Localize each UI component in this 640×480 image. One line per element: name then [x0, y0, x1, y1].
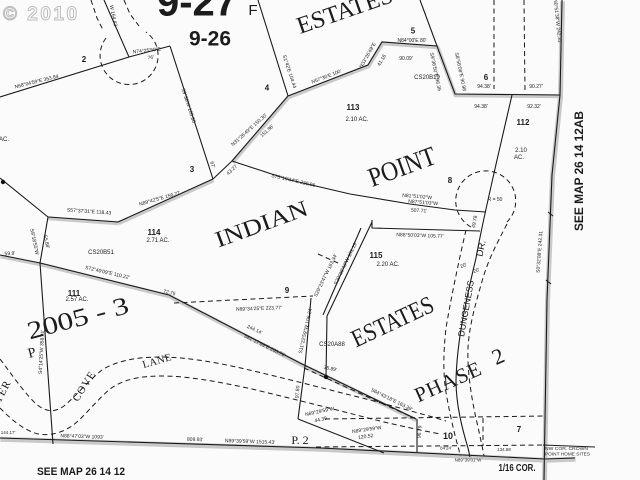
- svg-text:6: 6: [484, 73, 489, 82]
- svg-text:9: 9: [285, 286, 290, 295]
- svg-text:2.20 AC.: 2.20 AC.: [376, 262, 399, 268]
- svg-text:F: F: [248, 2, 257, 19]
- svg-text:4: 4: [265, 84, 270, 93]
- svg-text:7: 7: [517, 425, 522, 434]
- svg-text:2.10: 2.10: [515, 148, 527, 154]
- svg-text:114: 114: [148, 228, 161, 237]
- svg-text:809.93': 809.93': [187, 437, 203, 444]
- svg-text:59.8': 59.8': [4, 251, 15, 258]
- svg-text:144.17': 144.17': [1, 430, 16, 435]
- svg-text:2.57 AC.: 2.57 AC.: [65, 297, 88, 303]
- svg-text:AC.: AC.: [514, 155, 524, 161]
- svg-text:NW COR. CROWN: NW COR. CROWN: [545, 446, 588, 451]
- svg-text:P. 2: P. 2: [291, 433, 308, 447]
- svg-text:92.32': 92.32': [527, 104, 541, 110]
- svg-text:CS20B51: CS20B51: [88, 250, 114, 256]
- svg-text:8: 8: [448, 176, 453, 185]
- svg-text:AC.: AC.: [0, 137, 9, 143]
- svg-text:2.10 AC.: 2.10 AC.: [345, 117, 368, 123]
- svg-text:9-27: 9-27: [157, 0, 237, 25]
- svg-text:97.80: 97.80: [294, 385, 301, 398]
- svg-text:115: 115: [370, 251, 383, 260]
- svg-text:N84°00'E 80': N84°00'E 80': [398, 38, 427, 44]
- svg-text:90.27': 90.27': [529, 84, 543, 90]
- svg-text:SEE MAP 26 14 12: SEE MAP 26 14 12: [37, 466, 125, 478]
- svg-text:SEE MAP 26 14 12AB: SEE MAP 26 14 12AB: [572, 111, 586, 231]
- svg-text:R = 50: R = 50: [488, 197, 503, 203]
- svg-text:1/16 COR.: 1/16 COR.: [499, 463, 536, 474]
- svg-text:N89°39'01"W: N89°39'01"W: [455, 458, 483, 463]
- svg-text:112: 112: [517, 118, 530, 127]
- svg-text:10: 10: [443, 431, 453, 441]
- svg-text:3: 3: [190, 165, 195, 174]
- svg-text:94.38': 94.38': [474, 104, 488, 110]
- svg-text:76': 76': [147, 55, 154, 62]
- svg-text:2: 2: [82, 55, 87, 64]
- svg-text:94.38': 94.38': [477, 84, 491, 90]
- svg-text:113: 113: [347, 103, 360, 112]
- svg-text:© 2010: © 2010: [3, 4, 80, 25]
- svg-text:84'24': 84'24': [440, 446, 452, 451]
- svg-text:90.09': 90.09': [399, 56, 413, 62]
- svg-text:POINT HOME SITES: POINT HOME SITES: [545, 452, 590, 457]
- svg-text:9-26: 9-26: [189, 27, 231, 51]
- svg-text:CS20A88: CS20A88: [319, 342, 345, 348]
- svg-text:2.71 AC.: 2.71 AC.: [146, 238, 169, 244]
- svg-text:5: 5: [411, 27, 416, 36]
- svg-text:134.88: 134.88: [497, 447, 511, 452]
- svg-text:507.71': 507.71': [411, 208, 428, 215]
